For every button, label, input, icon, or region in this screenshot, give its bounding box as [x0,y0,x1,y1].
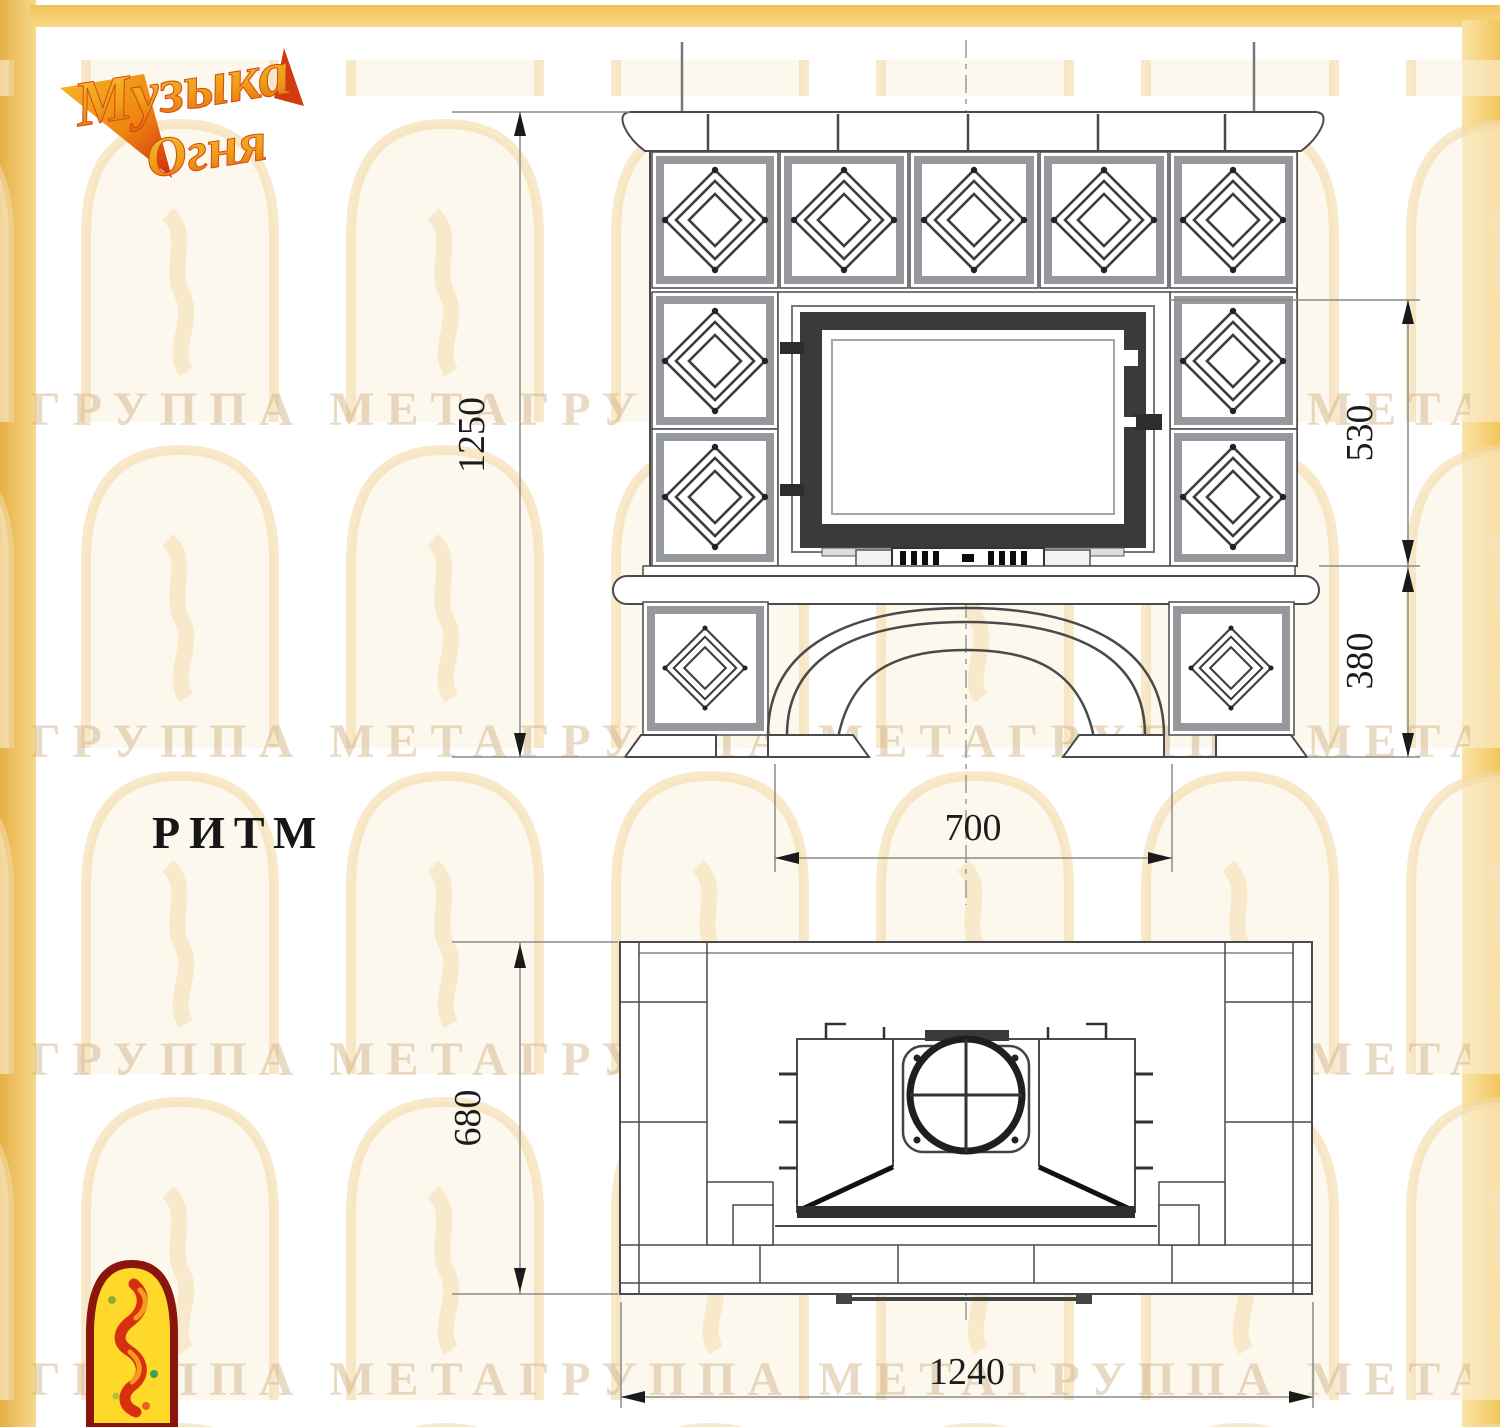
dim-firebox-zone-height: 530 [1339,405,1381,462]
door-latch [1120,350,1138,366]
tile [910,152,1038,288]
tile [1170,429,1297,566]
tile [780,152,908,288]
model-name-label: РИТМ [152,806,325,859]
tile [652,429,778,566]
cornice [622,112,1323,151]
tile [652,152,778,288]
tile [1040,152,1168,288]
front-elevation-view [613,40,1324,905]
door-hinge-top [780,342,804,354]
tile [1170,292,1297,429]
mantel-shelf [613,576,1319,604]
door-handle [1134,414,1162,430]
firebox-plan [775,1024,1157,1226]
plan-view [620,942,1312,1320]
fireplace-technical-drawing: 1250 530 380 700 [0,0,1500,1427]
dim-firebox-width: 700 [945,807,1002,849]
dim-overall-height: 1250 [451,397,493,473]
firebox-glass [822,330,1124,524]
dim-plan-width: 1240 [929,1351,1005,1393]
door-hinge-bottom [780,484,804,496]
firebox-front [778,292,1170,568]
insert-front-bar [797,1206,1135,1218]
tile [1170,152,1297,288]
tile [652,292,778,429]
plan-front-tabs [836,1294,1092,1304]
left-leg-tile [643,602,768,735]
brand-logo: Музыка Огня [22,10,342,190]
right-leg-tile [1169,602,1294,735]
brand-emblem [82,1256,182,1427]
drawing-sheet: ГРУППА МЕТАГРУППА МЕТАГРУППА МЕТА ГРУППА… [0,0,1500,1427]
dim-base-height: 380 [1339,633,1381,690]
dim-plan-depth: 680 [447,1090,489,1147]
under-tile-molding [643,566,1295,576]
